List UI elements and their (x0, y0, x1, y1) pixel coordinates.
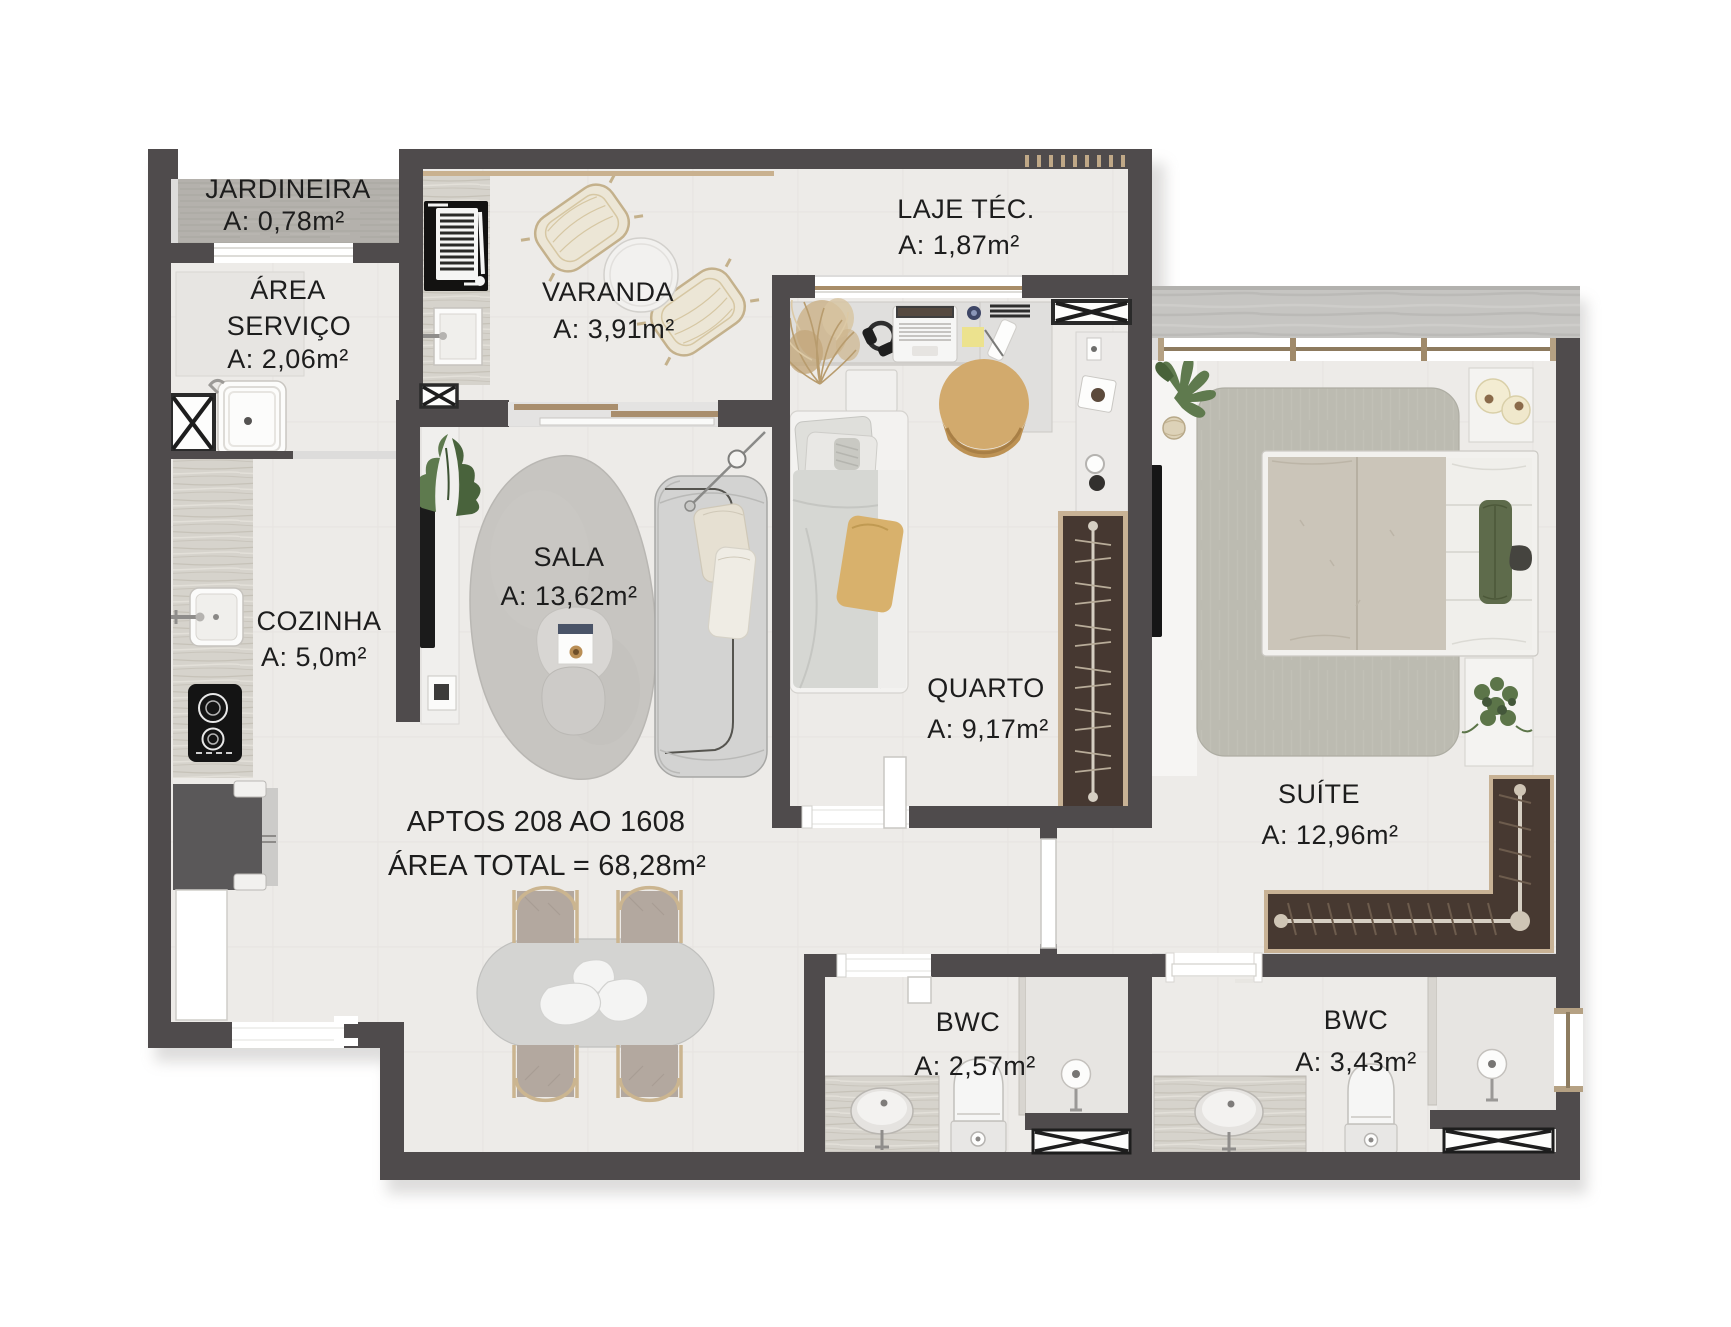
svg-text:JARDINEIRA: JARDINEIRA (205, 174, 371, 204)
svg-text:A: 12,96m²: A: 12,96m² (1261, 820, 1398, 850)
svg-text:VARANDA: VARANDA (542, 277, 674, 307)
svg-text:ÁREA TOTAL = 68,28m²: ÁREA TOTAL = 68,28m² (388, 849, 706, 882)
svg-text:A: 1,87m²: A: 1,87m² (898, 230, 1020, 260)
svg-text:A: 3,43m²: A: 3,43m² (1295, 1047, 1417, 1077)
svg-text:BWC: BWC (936, 1007, 1001, 1037)
svg-text:ÁREA: ÁREA (250, 275, 326, 305)
svg-text:SERVIÇO: SERVIÇO (227, 311, 352, 341)
svg-text:A: 13,62m²: A: 13,62m² (500, 581, 637, 611)
svg-text:LAJE TÉC.: LAJE TÉC. (897, 194, 1035, 224)
svg-text:A: 2,57m²: A: 2,57m² (914, 1051, 1036, 1081)
svg-text:COZINHA: COZINHA (257, 606, 382, 636)
svg-text:A: 3,91m²: A: 3,91m² (553, 314, 675, 344)
svg-text:A: 0,78m²: A: 0,78m² (223, 206, 345, 236)
svg-text:A: 9,17m²: A: 9,17m² (927, 714, 1049, 744)
svg-text:BWC: BWC (1324, 1005, 1389, 1035)
svg-text:SUÍTE: SUÍTE (1278, 779, 1360, 809)
svg-text:A: 5,0m²: A: 5,0m² (261, 642, 367, 672)
svg-text:QUARTO: QUARTO (927, 673, 1045, 703)
svg-text:APTOS 208 AO 1608: APTOS 208 AO 1608 (407, 806, 686, 838)
svg-text:SALA: SALA (533, 542, 604, 572)
svg-text:A: 2,06m²: A: 2,06m² (227, 344, 349, 374)
